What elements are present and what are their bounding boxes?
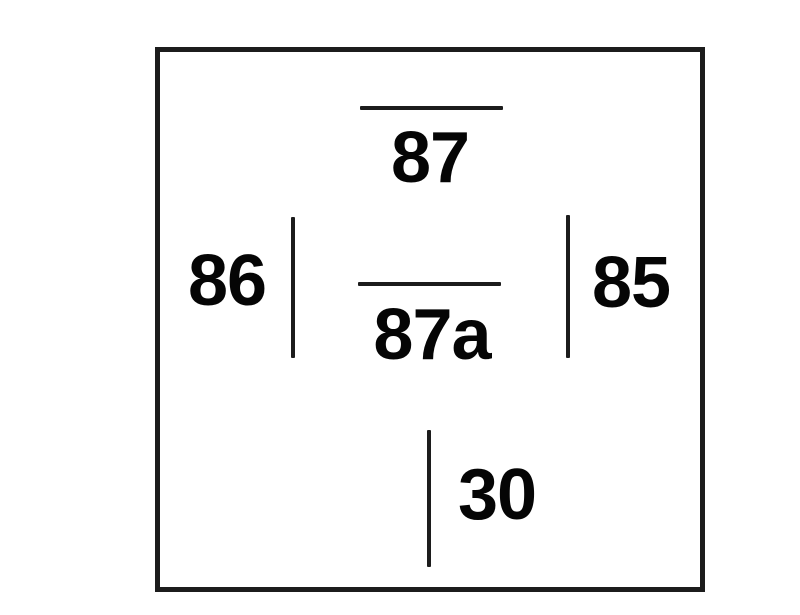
pin-86-terminal-line	[291, 217, 295, 358]
pin-30-label: 30	[458, 459, 536, 531]
pin-87-terminal-line	[360, 106, 503, 110]
pin-85-label: 85	[592, 247, 670, 319]
pin-30-terminal-line	[427, 430, 431, 567]
pin-87-label: 87	[391, 122, 469, 194]
pin-85-terminal-line	[566, 215, 570, 358]
pin-87a-label: 87a	[373, 299, 490, 371]
relay-pinout-diagram: 87 87a 86 85 30	[0, 0, 800, 615]
pin-86-label: 86	[188, 245, 266, 317]
pin-87a-terminal-line	[358, 282, 501, 286]
